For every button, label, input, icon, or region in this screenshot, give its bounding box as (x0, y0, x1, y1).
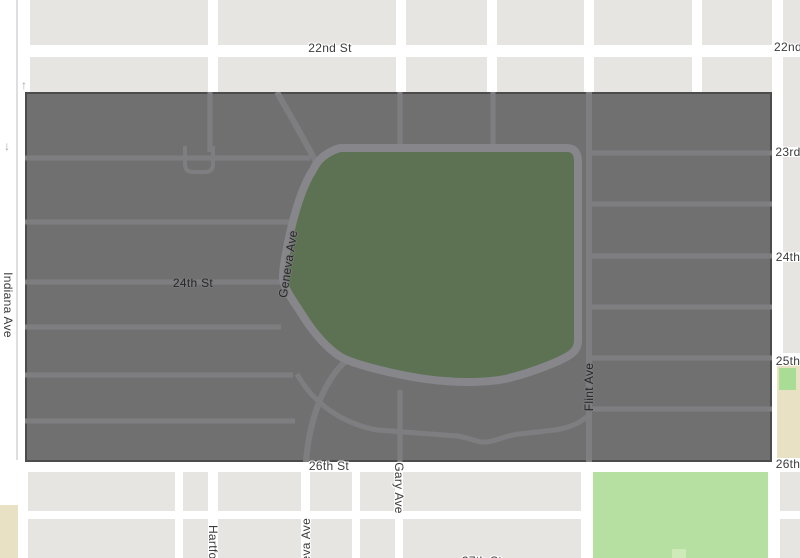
park-notch-block (672, 549, 686, 558)
city-block (310, 472, 352, 511)
city-block (783, 57, 800, 147)
city-block (702, 57, 772, 92)
city-block (218, 472, 301, 511)
city-block (403, 519, 581, 558)
city-block (28, 472, 175, 511)
city-block (406, 0, 487, 45)
city-block (780, 472, 800, 511)
city-block (183, 472, 208, 511)
overlay-street-network (25, 92, 772, 462)
city-block (783, 157, 800, 252)
oneway-arrow-down-icon: ↓ (4, 140, 10, 152)
city-block (594, 57, 692, 92)
beige-block (0, 505, 18, 558)
city-block (360, 519, 395, 558)
park-block (593, 472, 768, 558)
city-block (403, 472, 581, 511)
city-block (780, 519, 800, 558)
city-block (497, 57, 584, 92)
city-block (702, 0, 772, 45)
boundary-overlay (25, 92, 772, 462)
street-label-indiana-ave: Indiana Ave (2, 272, 14, 338)
city-block (783, 262, 800, 353)
city-block (30, 57, 208, 92)
city-block (218, 0, 396, 45)
city-block (30, 0, 208, 45)
city-block (183, 519, 208, 558)
map-canvas[interactable]: 22nd St22nd23rd24th25th26th26th St27th S… (0, 0, 800, 558)
city-block (310, 519, 352, 558)
city-block (594, 0, 692, 45)
city-block (497, 0, 584, 45)
park-polygon (283, 148, 578, 382)
street-label-26th-right: 26th (776, 458, 800, 470)
city-block (360, 472, 395, 511)
city-block (28, 519, 175, 558)
oneway-arrow-up-icon: ↑ (21, 79, 27, 91)
city-block (406, 57, 487, 92)
city-block (783, 0, 800, 45)
city-block (218, 57, 396, 92)
road-edge-line (16, 0, 18, 460)
street-line (277, 92, 317, 164)
city-block (218, 519, 301, 558)
park-patch-block (779, 368, 796, 390)
